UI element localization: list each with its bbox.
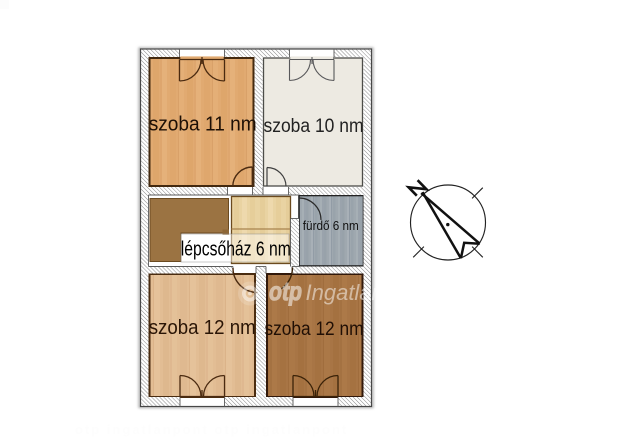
svg-text:lépcsőház 6 nm: lépcsőház 6 nm [181, 238, 291, 260]
svg-text:fürdő 6 nm: fürdő 6 nm [303, 218, 359, 233]
svg-text:Ingatlan: Ingatlan [306, 280, 384, 305]
svg-text:szoba 12 nm: szoba 12 nm [265, 319, 364, 340]
svg-text:szoba 10 nm: szoba 10 nm [264, 116, 364, 137]
svg-text:otp ingatlanpont otp ingatlan: otp ingatlanpont otp ingatlanpont [75, 422, 348, 437]
svg-text:otp: otp [269, 276, 302, 306]
svg-text:szoba 11 nm: szoba 11 nm [149, 114, 257, 136]
svg-text:szoba 12 nm: szoba 12 nm [149, 317, 256, 339]
